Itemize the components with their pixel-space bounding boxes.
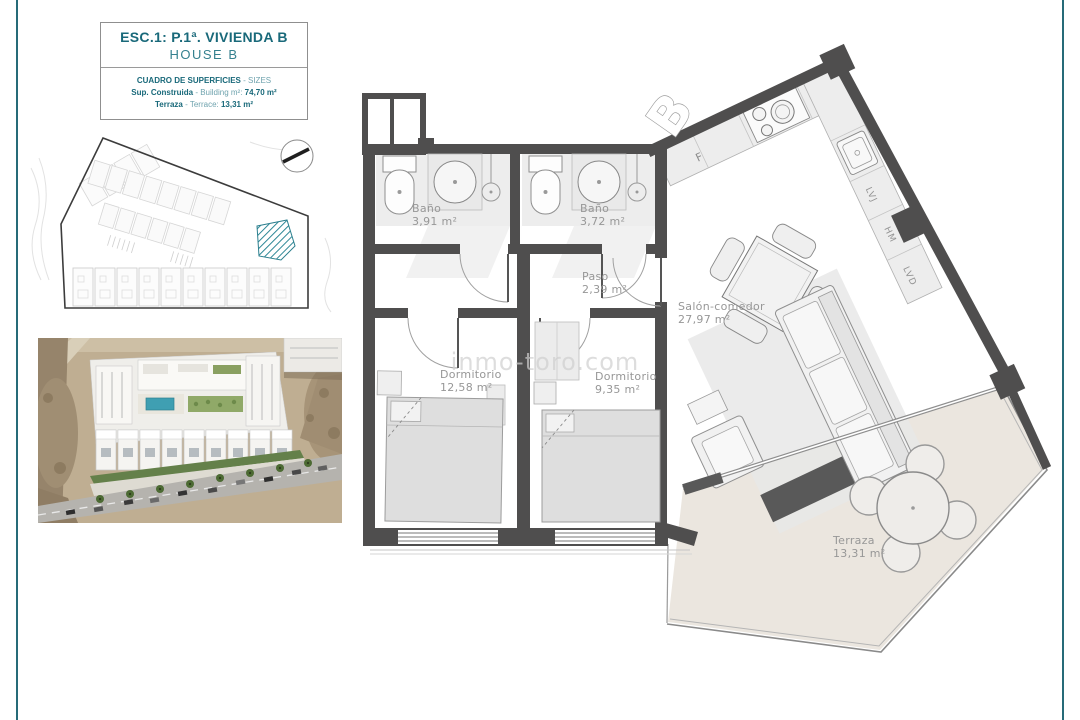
terrace-size-row: Terraza - Terrace: 13,31 m² [104,99,304,111]
north-compass-icon [281,140,313,172]
label-terraza-area: 13,31 m² [833,547,886,560]
bed [534,382,660,522]
sizes-heading: CUADRO DE SUPERFICIES - SIZES [104,75,304,87]
aerial-photo [38,338,342,523]
kitchen-counter-side: LVJ HM LVD [802,65,941,304]
label-dorm1-area: 12,58 m² [440,381,493,394]
label-bath2-area: 3,72 m² [580,215,625,228]
title-box: ESC.1: P.1ª. VIVIENDA B HOUSE B CUADRO D… [100,22,308,120]
label-salon-name: Salón-comedor [678,300,765,313]
page-frame-left [16,0,18,720]
label-paso-area: 2,39 m² [582,283,627,296]
label-terraza-name: Terraza [832,534,875,547]
plan-title-line1: ESC.1: P.1ª. VIVIENDA B [105,29,303,45]
label-dorm2-area: 9,35 m² [595,383,640,396]
site-highlighted-unit [257,220,295,260]
neighbour-building [284,338,342,380]
site-plan [25,128,343,314]
label-bath2-name: Baño [580,202,609,215]
label-bath1-area: 3,91 m² [412,215,457,228]
sizes-table: CUADRO DE SUPERFICIES - SIZES Sup. Const… [101,68,307,119]
brochure-page: ESC.1: P.1ª. VIVIENDA B HOUSE B CUADRO D… [0,0,1080,720]
label-paso-name: Paso [582,270,609,283]
label-dorm1-name: Dormitorio [440,368,502,381]
page-frame-right [1062,0,1064,720]
plan-title: ESC.1: P.1ª. VIVIENDA B HOUSE B [101,23,307,68]
floor-plan: F [350,40,1062,665]
label-dorm2-name: Dormitorio [595,370,657,383]
label-salon-area: 27,97 m² [678,313,731,326]
label-bath1-name: Baño [412,202,441,215]
built-size-row: Sup. Construida - Building m²: 74,70 m² [104,87,304,99]
toilet-icon [529,156,562,214]
plan-title-line2: HOUSE B [105,47,303,62]
